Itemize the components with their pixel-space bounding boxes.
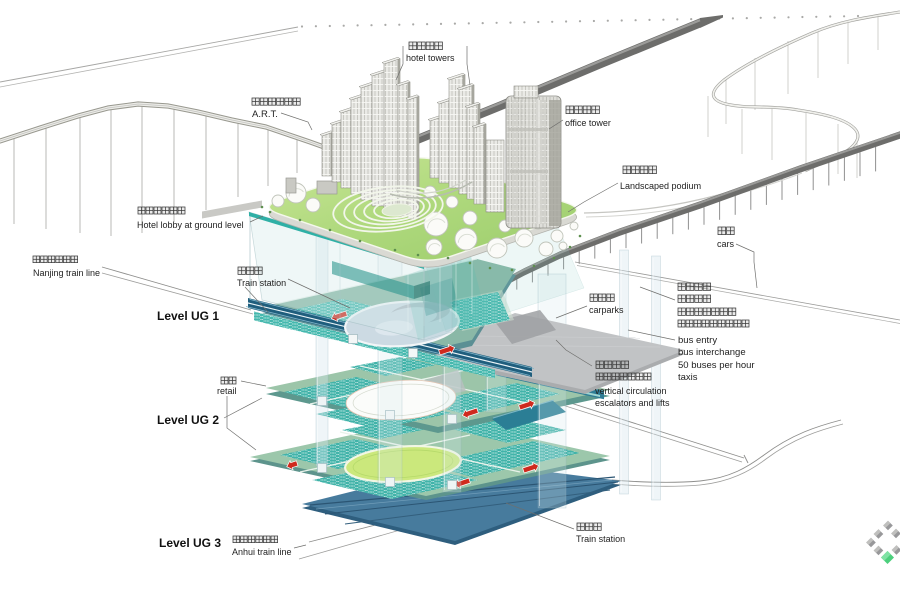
svg-text:Nanjing train line: Nanjing train line bbox=[33, 268, 100, 278]
svg-text:A.R.T.: A.R.T. bbox=[252, 109, 278, 120]
svg-text:office tower: office tower bbox=[565, 118, 611, 128]
svg-text:vertical circulation: vertical circulation bbox=[595, 386, 667, 396]
svg-text:Anhui train line: Anhui train line bbox=[232, 547, 292, 557]
svg-text:escalators and lifts: escalators and lifts bbox=[595, 398, 670, 408]
svg-text:Level UG 3: Level UG 3 bbox=[159, 536, 221, 550]
svg-text:Landscaped podium: Landscaped podium bbox=[620, 181, 701, 191]
svg-text:Hotel lobby at ground level: Hotel lobby at ground level bbox=[137, 220, 244, 230]
svg-text:bus interchange: bus interchange bbox=[678, 347, 746, 358]
svg-text:carparks: carparks bbox=[589, 305, 624, 315]
svg-text:Train station: Train station bbox=[237, 278, 286, 288]
svg-text:bus entry: bus entry bbox=[678, 335, 717, 346]
svg-text:hotel towers: hotel towers bbox=[406, 53, 455, 63]
svg-text:retail: retail bbox=[217, 386, 237, 396]
svg-text:cars: cars bbox=[717, 239, 735, 249]
svg-text:taxis: taxis bbox=[678, 372, 698, 383]
svg-text:Level UG 2: Level UG 2 bbox=[157, 413, 219, 427]
svg-text:Level UG 1: Level UG 1 bbox=[157, 309, 219, 323]
svg-text:50 buses per hour: 50 buses per hour bbox=[678, 360, 755, 371]
svg-text:Train station: Train station bbox=[576, 534, 625, 544]
